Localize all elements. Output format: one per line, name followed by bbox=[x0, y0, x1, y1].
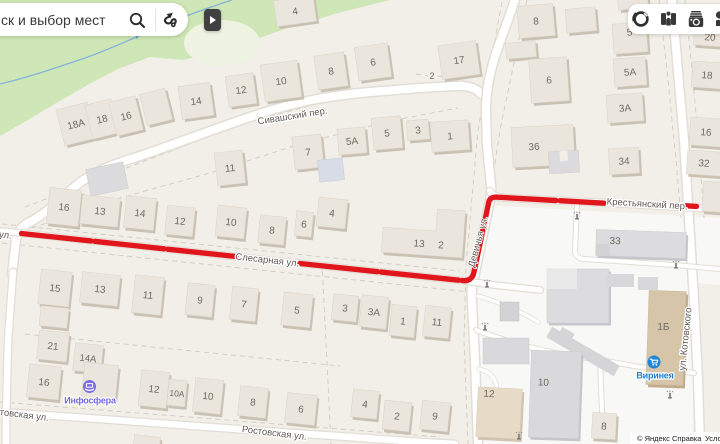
svg-text:17: 17 bbox=[453, 55, 466, 68]
svg-text:14: 14 bbox=[134, 208, 147, 220]
svg-text:36: 36 bbox=[528, 142, 540, 154]
svg-text:Справка: Справка bbox=[672, 434, 702, 443]
svg-text:10: 10 bbox=[202, 391, 215, 403]
svg-text:10: 10 bbox=[275, 76, 288, 89]
svg-text:21: 21 bbox=[47, 341, 60, 353]
svg-text:12: 12 bbox=[235, 85, 248, 98]
svg-text:3А: 3А bbox=[619, 103, 632, 115]
svg-text:13: 13 bbox=[94, 206, 107, 218]
svg-text:10: 10 bbox=[225, 217, 238, 229]
svg-text:18: 18 bbox=[701, 70, 713, 82]
svg-text:32: 32 bbox=[698, 158, 710, 170]
svg-text:11: 11 bbox=[224, 163, 236, 175]
svg-text:14: 14 bbox=[190, 96, 203, 109]
svg-text:16: 16 bbox=[700, 127, 712, 139]
svg-text:16: 16 bbox=[38, 377, 51, 389]
svg-text:16: 16 bbox=[58, 202, 71, 214]
svg-text:2: 2 bbox=[429, 71, 434, 81]
svg-text:© Яндекс: © Яндекс bbox=[637, 434, 670, 443]
svg-text:10: 10 bbox=[538, 377, 550, 388]
svg-text:Инфосфера: Инфосфера bbox=[64, 396, 117, 406]
svg-text:10А: 10А bbox=[169, 388, 185, 400]
svg-text:11: 11 bbox=[431, 317, 443, 329]
svg-text:13: 13 bbox=[413, 238, 425, 250]
svg-text:11: 11 bbox=[142, 290, 154, 302]
svg-text:33: 33 bbox=[609, 236, 621, 247]
svg-text:8: 8 bbox=[601, 421, 608, 432]
svg-text:ул.: ул. bbox=[0, 229, 12, 241]
svg-text:12: 12 bbox=[483, 389, 495, 401]
svg-text:5А: 5А bbox=[346, 136, 359, 148]
svg-text:12: 12 bbox=[148, 384, 161, 396]
svg-text:Виринея: Виринея bbox=[636, 371, 673, 381]
svg-text:5А: 5А bbox=[624, 67, 637, 79]
svg-text:Усло: Усло bbox=[705, 434, 720, 443]
svg-text:12: 12 bbox=[174, 216, 187, 228]
svg-text:15: 15 bbox=[49, 283, 62, 295]
svg-text:13: 13 bbox=[94, 284, 107, 296]
svg-text:3А: 3А bbox=[367, 307, 381, 319]
svg-text:1Б: 1Б bbox=[657, 322, 670, 333]
svg-text:34: 34 bbox=[618, 156, 630, 168]
